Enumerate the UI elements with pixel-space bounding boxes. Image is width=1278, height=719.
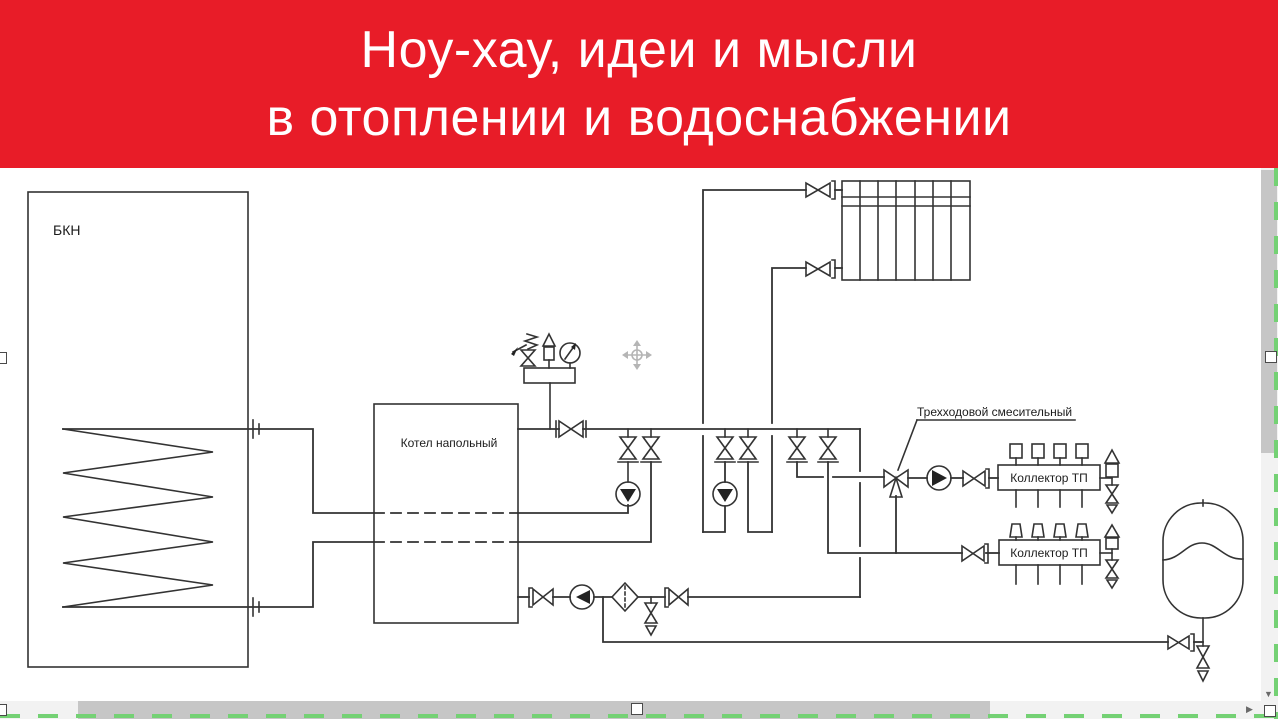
pipe-union-icon bbox=[253, 420, 259, 616]
pump-floor-heating bbox=[927, 466, 951, 490]
radiator bbox=[842, 181, 970, 280]
collector2-valve-icon bbox=[962, 544, 988, 563]
collector1-loops bbox=[1016, 490, 1082, 507]
radiator-valve-icon bbox=[806, 181, 835, 278]
three-way-callout: Трехходовой смесительный bbox=[898, 405, 1075, 470]
collector2-label: Коллектор ТП bbox=[1010, 546, 1087, 560]
expansion-drain-icon bbox=[1197, 646, 1209, 681]
collector1-valve-icon bbox=[963, 469, 989, 488]
safety-group bbox=[511, 334, 580, 429]
return-valve2-icon bbox=[665, 588, 688, 607]
scroll-right-icon[interactable]: ▶ bbox=[1246, 705, 1253, 714]
air-vent-icon bbox=[543, 334, 555, 368]
pump-dhw bbox=[616, 462, 640, 506]
selection-handle-bottom-left[interactable] bbox=[0, 704, 7, 716]
tank-label: БКН bbox=[53, 222, 80, 238]
return-valve-icon bbox=[529, 588, 553, 607]
branch-valves bbox=[618, 429, 838, 462]
pump-radiators bbox=[713, 482, 737, 506]
boiler-return-pipe bbox=[518, 597, 1203, 642]
collector2-actuators bbox=[1010, 524, 1088, 540]
boiler-label: Котел напольный bbox=[401, 436, 498, 450]
branch-valve-icon bbox=[787, 429, 807, 462]
boiler-supply-valve-icon bbox=[556, 421, 586, 437]
three-way-valve-icon bbox=[884, 470, 908, 497]
banner-title-line1: Ноу-хау, идеи и мысли bbox=[361, 20, 918, 80]
selection-handle-left[interactable] bbox=[0, 352, 7, 364]
selection-handle-right[interactable] bbox=[1265, 351, 1277, 363]
collector1-vent-drain-icon bbox=[1105, 450, 1119, 513]
title-banner: Ноу-хау, идеи и мысли в отоплении и водо… bbox=[0, 0, 1278, 168]
three-way-label: Трехходовой смесительный bbox=[917, 405, 1072, 419]
collector1-label: Коллектор ТП bbox=[1010, 471, 1087, 485]
branch-valve-icon bbox=[738, 429, 758, 462]
collector1-actuators bbox=[1010, 444, 1088, 465]
radiator-circuit-pipes bbox=[703, 190, 842, 532]
tank-boiler-pipes bbox=[63, 429, 651, 607]
branch-valve-icon bbox=[641, 429, 661, 462]
collector-1: Коллектор ТП bbox=[998, 444, 1119, 513]
safety-valve-icon bbox=[511, 334, 537, 366]
expansion-tank bbox=[1163, 500, 1243, 646]
branch-valve-icon bbox=[715, 429, 735, 462]
pump-boiler-return bbox=[570, 585, 594, 609]
pressure-gauge-icon bbox=[560, 343, 580, 368]
selection-handle-bottom-right[interactable] bbox=[1264, 705, 1276, 717]
branch-valve-icon bbox=[618, 429, 638, 462]
move-anchor-icon bbox=[622, 340, 652, 370]
selection-border-right bbox=[1274, 168, 1278, 719]
filter-icon bbox=[612, 583, 638, 611]
banner-title-line2: в отоплении и водоснабжении bbox=[266, 88, 1011, 148]
heat-exchanger-coil bbox=[63, 429, 213, 607]
collector2-vent-drain-icon bbox=[1105, 525, 1119, 588]
collector2-loops bbox=[1016, 565, 1082, 584]
collector-2: Коллектор ТП bbox=[999, 524, 1119, 588]
expansion-valve-icon bbox=[1168, 634, 1194, 651]
branch-valve-icon bbox=[818, 429, 838, 462]
selection-handle-bottom-center[interactable] bbox=[631, 703, 643, 715]
drain-valve-icon bbox=[645, 597, 657, 635]
scroll-down-icon[interactable]: ▼ bbox=[1264, 690, 1273, 699]
